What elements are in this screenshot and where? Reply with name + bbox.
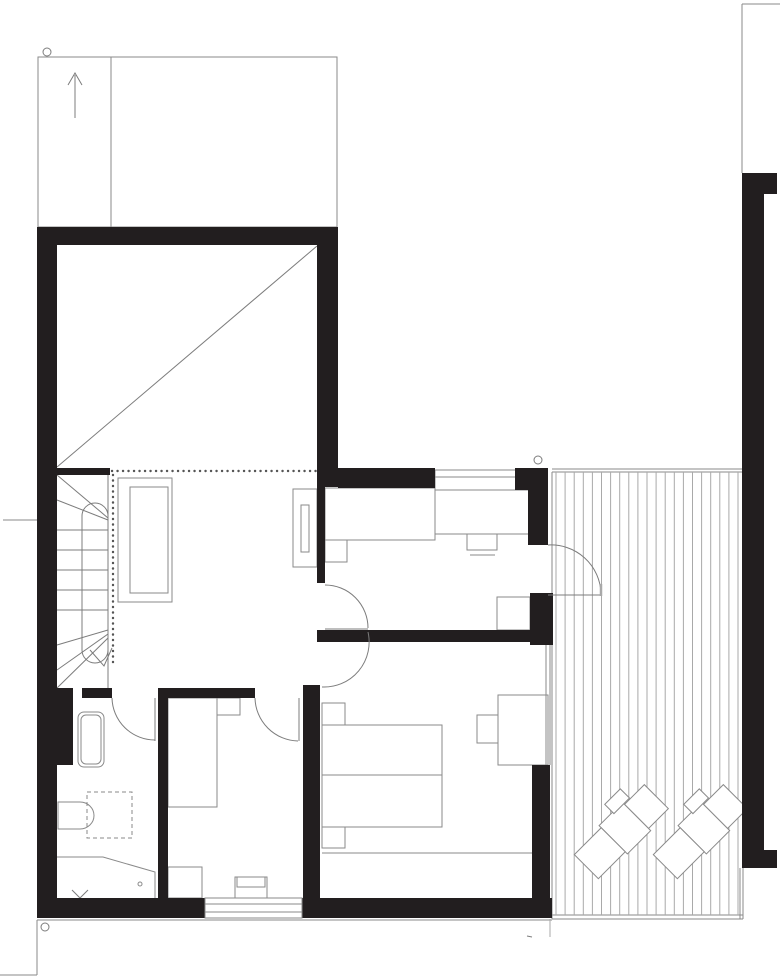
bathtub-inner: [81, 715, 101, 764]
wall-bath-top-seg: [82, 688, 112, 698]
bedroom1-nightstand: [325, 540, 347, 562]
bedroom3-nightstand-a: [322, 703, 345, 725]
vanity-check-mark: [72, 890, 88, 898]
bedroom1-cabinet: [497, 597, 530, 630]
tiny-mark: [527, 936, 532, 937]
wall-bedroom1-top: [338, 468, 435, 488]
door-arc-bedroom1: [325, 585, 368, 628]
toilet: [58, 802, 94, 829]
bedroom1-bed: [325, 488, 435, 540]
wall-bottom-a: [37, 898, 205, 918]
sun-lounger-1: [564, 775, 670, 881]
bedroom2-bed: [168, 698, 217, 807]
wall-void-south-stub: [55, 468, 110, 475]
wall-bedroom2-top: [168, 688, 255, 698]
bedroom3-nightstand-b: [322, 827, 345, 848]
wall-center-vertical: [303, 685, 320, 898]
void-diagonal: [57, 246, 317, 467]
section-marker-deck: [534, 456, 542, 464]
wall-hall-thin: [317, 487, 325, 583]
bedroom2-nightstand: [217, 698, 240, 715]
wall-bottom-b: [302, 898, 552, 918]
hall-sideboard-outer: [118, 478, 172, 602]
bedroom3-bed: [322, 725, 442, 827]
bedroom1-wardrobe: [435, 470, 517, 490]
wall-ne-flange: [742, 173, 777, 194]
door-arc-bathroom: [112, 698, 155, 740]
bedroom1-desk: [435, 490, 530, 534]
drain-dot: [138, 882, 142, 886]
wall-void-right: [317, 227, 338, 487]
wall-pier-top-b: [528, 490, 548, 545]
wall-exterior-right-bottom: [532, 765, 550, 918]
wall-mid-horizontal: [317, 630, 530, 642]
wall-bath-stub: [55, 688, 73, 765]
sun-lounger-2: [643, 775, 749, 881]
wall-ne-vertical: [742, 194, 764, 868]
section-marker-top-left: [43, 48, 51, 56]
section-marker-bottom-left: [41, 923, 49, 931]
door-arc-bedroom2: [255, 698, 298, 741]
carport-outline: [38, 57, 337, 227]
hall-cabinet-inner: [301, 505, 309, 552]
bedroom1-chair: [467, 534, 497, 550]
bathtub-outer: [78, 712, 104, 767]
hall-cabinet: [293, 489, 317, 567]
bedroom2-dresser-a: [168, 867, 202, 898]
floor-plan-drawing: [0, 0, 780, 979]
wall-pier-top-a: [515, 468, 548, 490]
vanity-counter: [57, 857, 155, 898]
wall-bath-bed2: [158, 688, 168, 898]
window-bottom: [205, 898, 302, 918]
bedroom3-desk: [498, 695, 548, 765]
stair-walkline: [82, 503, 108, 663]
hall-sideboard-inner: [130, 487, 168, 593]
wall-exterior-left: [37, 227, 57, 918]
wall-void-top: [37, 227, 338, 245]
bedroom3-chair: [477, 715, 498, 743]
floor-plan-page: [0, 0, 780, 979]
bedroom2-dresser-b-inner: [237, 877, 265, 887]
wall-ne-foot: [764, 850, 777, 868]
wall-pier-mid: [530, 593, 553, 645]
